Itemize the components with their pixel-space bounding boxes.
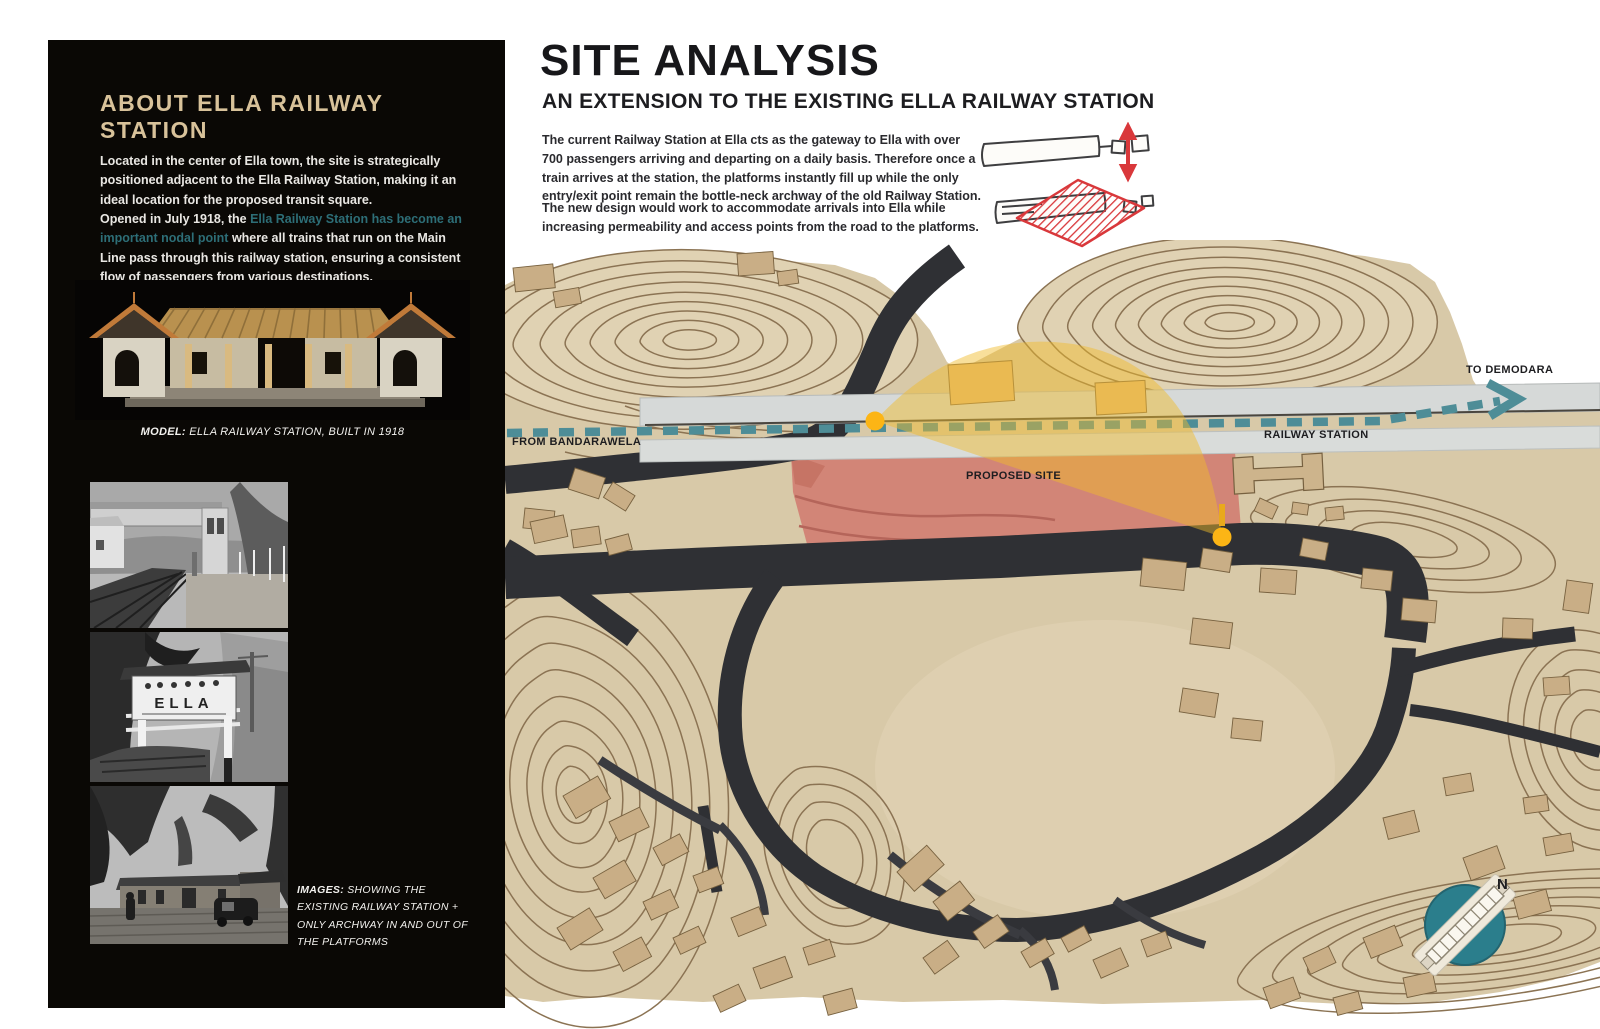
model-caption: MODEL: ELLA RAILWAY STATION, BUILT IN 19… bbox=[75, 426, 470, 438]
sketch-proposed-access bbox=[996, 180, 1154, 246]
page-subtitle: AN EXTENSION TO THE EXISTING ELLA RAILWA… bbox=[542, 90, 1154, 114]
sketch-existing-platform bbox=[982, 126, 1149, 178]
site-model-map bbox=[505, 240, 1600, 1029]
station-model-photo bbox=[75, 280, 470, 420]
about-heading: ABOUT ELLA RAILWAY STATION bbox=[100, 90, 400, 144]
node-dot-west bbox=[866, 412, 885, 431]
site-model-illustration bbox=[505, 240, 1600, 1029]
label-railway-station: RAILWAY STATION bbox=[1264, 429, 1369, 441]
label-north: N bbox=[1497, 876, 1508, 893]
ella-sign-text: ELLA bbox=[154, 695, 213, 712]
station-model-illustration bbox=[75, 280, 470, 420]
photo-ella-sign: ELLA bbox=[90, 632, 288, 782]
platform-concept-sketches bbox=[972, 122, 1182, 254]
about-paragraph-1: Located in the center of Ella town, the … bbox=[100, 152, 462, 210]
about-panel: ABOUT ELLA RAILWAY STATION Located in th… bbox=[48, 40, 505, 1008]
label-to-demodara: TO DEMODARA bbox=[1466, 364, 1553, 376]
model-caption-text: ELLA RAILWAY STATION, BUILT IN 1918 bbox=[186, 426, 404, 438]
photo-platform-footbridge bbox=[90, 482, 288, 628]
presentation-board: ABOUT ELLA RAILWAY STATION Located in th… bbox=[0, 0, 1600, 1029]
para2-prefix: Opened in July 1918, the bbox=[100, 212, 250, 226]
about-paragraph-2: Opened in July 1918, the Ella Railway St… bbox=[100, 210, 462, 288]
intro-paragraph-2: The new design would work to accommodate… bbox=[542, 199, 982, 237]
node-dot-east bbox=[1213, 528, 1232, 547]
model-caption-label: MODEL: bbox=[141, 426, 186, 438]
images-caption: IMAGES: SHOWING THE EXISTING RAILWAY STA… bbox=[297, 882, 473, 951]
page-title: SITE ANALYSIS bbox=[540, 36, 880, 86]
label-from-bandarawela: FROM BANDARAWELA bbox=[512, 436, 641, 448]
images-caption-label: IMAGES: bbox=[297, 884, 344, 896]
intro-paragraph-1: The current Railway Station at Ella cts … bbox=[542, 131, 982, 206]
label-proposed-site: PROPOSED SITE bbox=[966, 470, 1061, 482]
photo-station-entrance bbox=[90, 786, 288, 944]
